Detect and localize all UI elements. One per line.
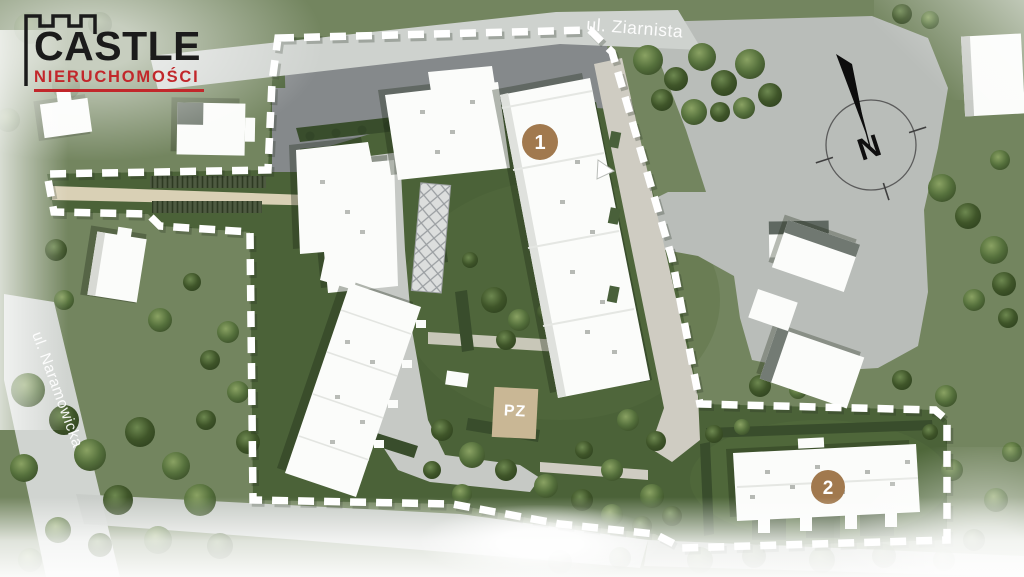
neighbor-house-c — [80, 222, 148, 303]
corridor-hedge-bottom — [152, 201, 262, 213]
svg-text:2: 2 — [823, 478, 834, 499]
pz-area: PZ — [492, 387, 539, 439]
neighbor-house-b — [171, 97, 256, 155]
logo[interactable]: CASTLE NIERUCHOMOŚCI — [20, 4, 234, 102]
logo-underline — [34, 89, 204, 92]
neighbor-far-right — [961, 33, 1024, 116]
building-1-marker[interactable]: 1 — [522, 124, 558, 160]
logo-title: CASTLE — [34, 26, 201, 67]
logo-subtitle: NIERUCHOMOŚCI — [34, 68, 200, 87]
building-2-marker[interactable]: 2 — [811, 470, 845, 504]
site-plan: N PZ ul. Ziarnista ul. Naramowicka 1 2 C… — [0, 0, 1024, 577]
svg-text:1: 1 — [534, 132, 545, 154]
pz-label: PZ — [503, 402, 526, 420]
